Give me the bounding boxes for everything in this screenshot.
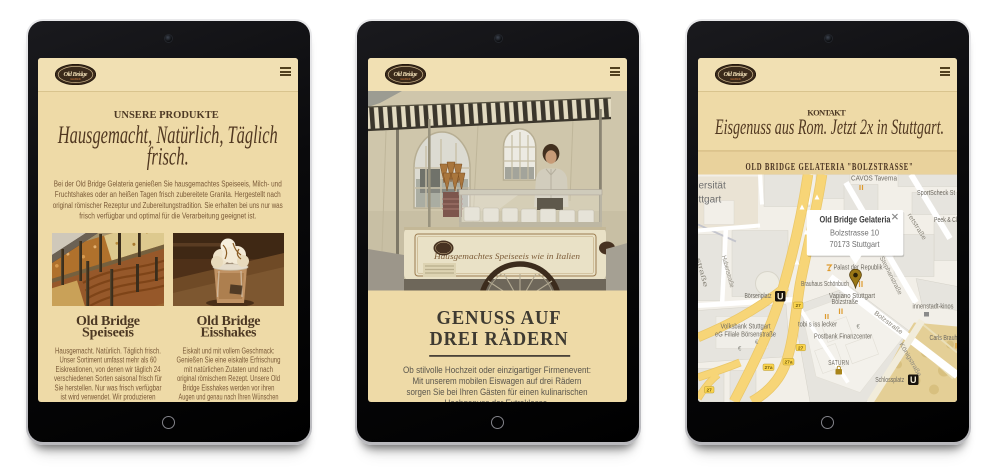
- svg-text:U: U: [777, 292, 784, 302]
- svg-text:ist wird verwendet. Wir produz: ist wird verwendet. Wir produzieren: [61, 393, 156, 402]
- svg-text:Hochgenuss der Extraklasse.: Hochgenuss der Extraklasse.: [444, 398, 549, 402]
- svg-text:eG Filiale Börsenstraße: eG Filiale Börsenstraße: [715, 332, 776, 339]
- svg-text:Augen und genau nach Ihren Wün: Augen und genau nach Ihren Wünschen: [179, 393, 279, 402]
- svg-text:Sie herstellen. Nur was frisch: Sie herstellen. Nur was frisch verfügbar: [55, 383, 162, 392]
- svg-text:UNSERE PRODUKTE: UNSERE PRODUKTE: [114, 110, 222, 121]
- svg-text:tobi s iss lecker: tobi s iss lecker: [798, 322, 838, 329]
- svg-text:Brauhaus Schönbuch: Brauhaus Schönbuch: [801, 281, 849, 288]
- svg-text:SportScheck St: SportScheck St: [917, 190, 955, 197]
- svg-text:27a: 27a: [764, 365, 772, 371]
- svg-text:Börsenplatz: Börsenplatz: [744, 293, 771, 300]
- svg-text:mit natürlichen Zutaten und na: mit natürlichen Zutaten und nach: [184, 365, 273, 374]
- svg-text:GELATERIA: GELATERIA: [400, 77, 411, 81]
- svg-text:sorgen Sie bei Ihren Gästen fü: sorgen Sie bei Ihren Gästen für einen ku…: [406, 387, 587, 397]
- svg-text:Eisgenuss aus Rom. Jetzt 2x in: Eisgenuss aus Rom. Jetzt 2x in Stuttgart…: [714, 114, 944, 139]
- svg-text:original römischem Rezept. Uns: original römischem Rezept. Unsere Old: [177, 374, 280, 383]
- svg-text:70173 Stuttgart: 70173 Stuttgart: [829, 239, 880, 249]
- svg-text:OLD BRIDGE GELATERIA "BOLZSTRA: OLD BRIDGE GELATERIA "BOLZSTRASSE": [745, 162, 913, 173]
- svg-text:GELATERIA: GELATERIA: [730, 77, 741, 81]
- svg-text:frisch verfügbar und optimal f: frisch verfügbar und optimal für die Ver…: [79, 212, 256, 221]
- svg-text:27: 27: [706, 388, 712, 394]
- svg-text:Mit unserem mobilen Eiswagen a: Mit unserem mobilen Eiswagen auf drei Rä…: [412, 376, 581, 386]
- svg-text:innenstadt-kinos: innenstadt-kinos: [912, 304, 953, 311]
- svg-text:Postbank Finanzcenter: Postbank Finanzcenter: [814, 334, 873, 341]
- svg-text:Bolzstraße: Bolzstraße: [831, 299, 858, 306]
- svg-text:Volksbank Stuttgart: Volksbank Stuttgart: [720, 324, 770, 331]
- svg-text:Unser Sortiment umfasst mehr a: Unser Sortiment umfasst mehr als 60: [60, 356, 157, 365]
- svg-text:Carls Brauh: Carls Brauh: [929, 335, 957, 342]
- svg-text:Eisshakes: Eisshakes: [201, 325, 258, 340]
- svg-text:Ob stilvolle Hochzeit oder ein: Ob stilvolle Hochzeit oder einzigartiger…: [403, 364, 591, 374]
- svg-text:CAVOS Taverna: CAVOS Taverna: [851, 176, 897, 183]
- svg-text:Genießen Sie eine eiskalte Erf: Genießen Sie eine eiskalte Erfrischung: [177, 356, 281, 365]
- svg-text:Eiskalt und mit vollem Geschma: Eiskalt und mit vollem Geschmack:: [183, 347, 275, 356]
- svg-text:27a: 27a: [784, 360, 792, 366]
- svg-text:Bei der Old Bridge Gelateria g: Bei der Old Bridge Gelateria genießen Si…: [54, 179, 282, 188]
- svg-text:Bolzstrasse 10: Bolzstrasse 10: [830, 228, 879, 238]
- svg-text:Hausgemachtes Speiseeis wie in: Hausgemachtes Speiseeis wie in Italien: [432, 251, 579, 261]
- svg-text:GENUSS AUF: GENUSS AUF: [436, 307, 561, 329]
- svg-text:Bridge Eisshakes werden vor ih: Bridge Eisshakes werden vor ihren: [183, 383, 275, 392]
- svg-text:Speiseeis: Speiseeis: [82, 325, 135, 340]
- svg-text:verschiedenen Sorten saisonal: verschiedenen Sorten saisonal frisch für: [54, 374, 162, 383]
- svg-text:original römischer Rezeptur un: original römischer Rezeptur und Zubereit…: [53, 201, 283, 210]
- svg-text:U: U: [910, 375, 917, 385]
- svg-text:ttgart: ttgart: [698, 195, 721, 206]
- svg-text:Hausgemacht. Natürlich. Täglic: Hausgemacht. Natürlich. Täglich frisch.: [55, 347, 161, 356]
- svg-text:Peek & Cl: Peek & Cl: [934, 217, 957, 224]
- svg-text:27: 27: [795, 303, 801, 309]
- svg-text:Old Bridge Gelateria: Old Bridge Gelateria: [819, 215, 891, 225]
- svg-text:frisch.: frisch.: [147, 144, 189, 171]
- svg-text:Eiskreationen, von denen wir t: Eiskreationen, von denen wir täglich 24: [56, 365, 161, 374]
- svg-text:Fruchtshakes oder an heißen Ta: Fruchtshakes oder an heißen Tagen frisch…: [55, 190, 281, 199]
- svg-text:GELATERIA: GELATERIA: [70, 77, 81, 81]
- svg-text:ersität: ersität: [698, 181, 725, 192]
- svg-text:DREI RÄDERN: DREI RÄDERN: [429, 327, 568, 350]
- svg-text:Schlossplatz: Schlossplatz: [875, 377, 904, 384]
- svg-text:27: 27: [798, 345, 804, 351]
